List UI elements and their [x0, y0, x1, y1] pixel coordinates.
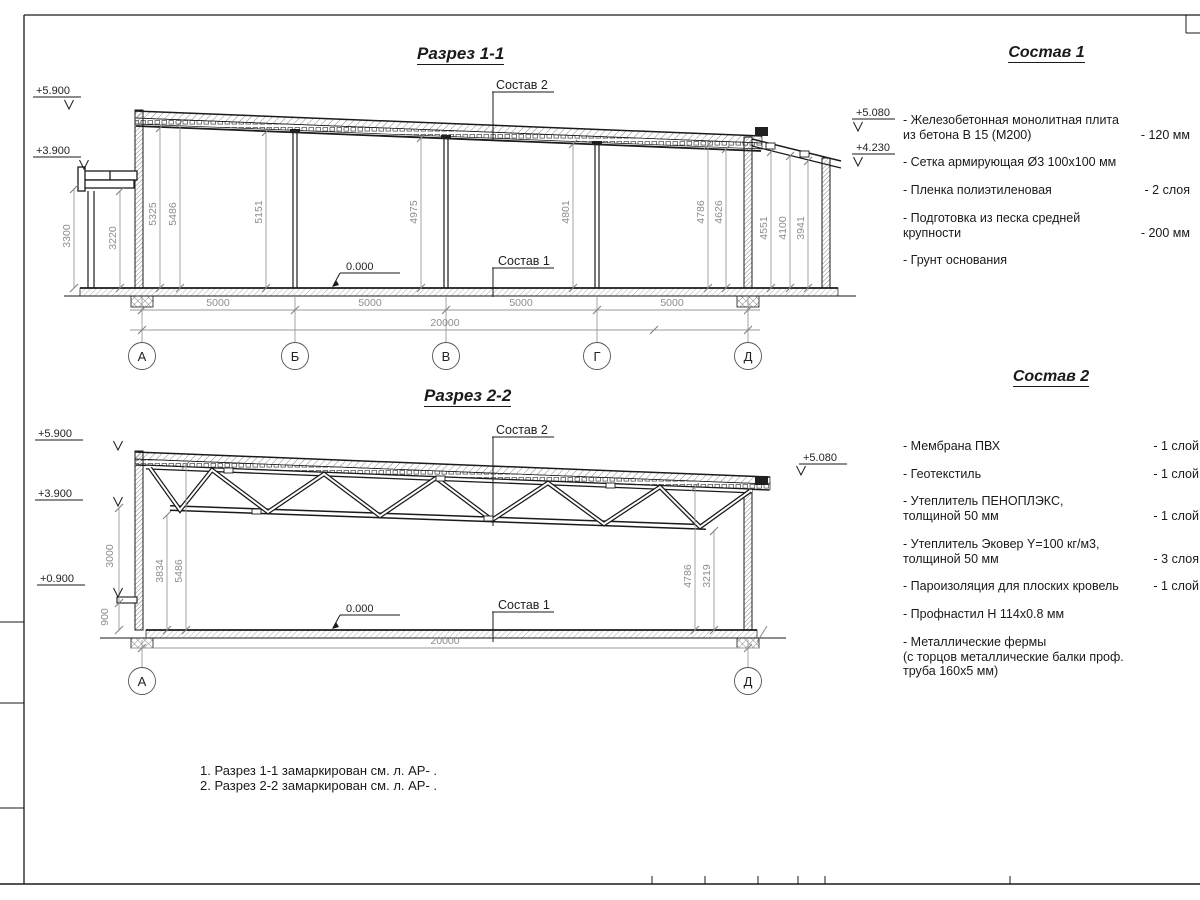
dim-value: 5000 — [206, 297, 230, 309]
section2-dimensions — [115, 461, 762, 695]
dim-value: 4786 — [695, 200, 707, 224]
dim-value: 4975 — [408, 200, 420, 224]
list-item: - Пароизоляция для плоских кровель- 1 сл… — [903, 579, 1199, 594]
list-item: - Металлические фермы (с торцов металлич… — [903, 635, 1199, 679]
leader-comp2: Состав 2 — [496, 423, 548, 437]
section1-dimensions — [70, 119, 812, 370]
dim-total: 20000 — [430, 635, 459, 647]
dim-value: 5486 — [167, 202, 179, 226]
elevation-mark: +4.230 — [856, 142, 890, 154]
list-item: - Пленка полиэтиленовая- 2 слоя — [903, 183, 1190, 198]
dim-value: 3219 — [701, 564, 713, 588]
dim-value: 5486 — [173, 559, 185, 583]
dim-value: 3000 — [104, 544, 116, 568]
elevation-mark: +5.080 — [803, 452, 837, 464]
dim-value: 3941 — [795, 216, 807, 240]
drawing-sheet: +5.900 +3.900 +5.080 +4.230 0.000 Состав… — [0, 0, 1200, 900]
zero-level-mark: 0.000 — [346, 603, 374, 615]
dim-value: 5000 — [358, 297, 382, 309]
dim-value: 4626 — [713, 200, 725, 224]
dim-value: 3220 — [107, 226, 119, 250]
leader-comp2: Состав 2 — [496, 78, 548, 92]
list-item: - Утеплитель Эковер Y=100 кг/м3, толщино… — [903, 537, 1199, 567]
elevation-mark: +5.900 — [36, 85, 70, 97]
dim-value: 3300 — [61, 224, 73, 248]
axis-label: Д — [744, 349, 753, 364]
dim-value: 5000 — [660, 297, 684, 309]
composition1-list: Состав 1 - Железобетонная монолитная пли… — [903, 44, 1190, 281]
dim-value: 3834 — [154, 559, 166, 583]
dim-value: 4786 — [682, 564, 694, 588]
axis-label: Б — [291, 349, 300, 364]
dim-value: 4100 — [777, 216, 789, 240]
axis-label: А — [138, 349, 147, 364]
axis-label: А — [138, 674, 147, 689]
list-item: - Грунт основания — [903, 253, 1190, 268]
section2-title-text: Разрез 2-2 — [424, 386, 511, 407]
leader-comp1: Состав 1 — [498, 598, 550, 612]
list-item: - Профнастил Н 114х0.8 мм — [903, 607, 1199, 622]
composition1-title: Состав 1 — [903, 44, 1190, 63]
annex — [752, 139, 841, 288]
composition2-title: Состав 2 — [903, 368, 1199, 387]
composition2-list: Состав 2 - Мембрана ПВХ- 1 слой - Геотек… — [903, 368, 1199, 692]
roof-end-beam — [755, 127, 768, 136]
columns — [293, 132, 599, 288]
dim-total: 20000 — [430, 317, 459, 329]
list-item: - Утеплитель ПЕНОПЛЭКС, толщиной 50 мм- … — [903, 494, 1199, 524]
section1-structure — [64, 110, 856, 307]
elevation-mark: +5.900 — [38, 428, 72, 440]
axis-label: В — [442, 349, 451, 364]
leader-comp1: Состав 1 — [498, 254, 550, 268]
dim-value: 900 — [99, 608, 111, 626]
list-item: - Мембрана ПВХ- 1 слой — [903, 439, 1199, 454]
axis-label: Г — [593, 349, 600, 364]
section2-structure — [100, 451, 786, 648]
section1-title: Разрез 1-1 — [417, 44, 504, 64]
elevation-mark: +5.080 — [856, 107, 890, 119]
list-item: - Железобетонная монолитная плита из бет… — [903, 113, 1190, 143]
notes: 1. Разрез 1-1 замаркирован см. л. АР- . … — [200, 764, 437, 793]
dim-value: 4551 — [758, 216, 770, 240]
elevation-mark: +0.900 — [40, 573, 74, 585]
note-line: 1. Разрез 1-1 замаркирован см. л. АР- . — [200, 764, 437, 779]
list-item: - Геотекстиль- 1 слой — [903, 467, 1199, 482]
list-item: - Сетка армирующая Ø3 100х100 мм — [903, 155, 1190, 170]
dim-value: 5325 — [147, 202, 159, 226]
dim-value: 4801 — [560, 200, 572, 224]
dim-value: 5000 — [509, 297, 533, 309]
dim-value: 5151 — [253, 200, 265, 224]
list-item: - Подготовка из песка средней крупности-… — [903, 211, 1190, 241]
elevation-mark: +3.900 — [38, 488, 72, 500]
axis-label: Д — [744, 674, 753, 689]
section2-title: Разрез 2-2 — [424, 386, 511, 406]
section1-title-text: Разрез 1-1 — [417, 44, 504, 65]
elevation-mark: +3.900 — [36, 145, 70, 157]
note-line: 2. Разрез 2-2 замаркирован см. л. АР- . — [200, 779, 437, 794]
zero-level-mark: 0.000 — [346, 261, 374, 273]
roof-end-beam — [755, 476, 768, 485]
